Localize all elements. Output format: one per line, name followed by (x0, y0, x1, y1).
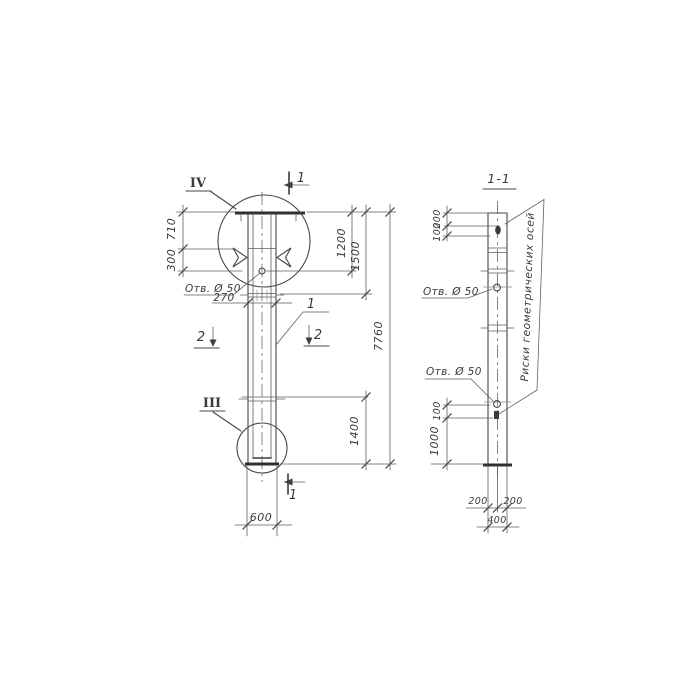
axis-mark-bottom (494, 411, 499, 419)
dim-1400: 1400 (348, 416, 361, 446)
section-arrow-head (210, 340, 217, 348)
right-view-section-1-1: 1-1 Риски геометрических осей Отв. Ø 50 … (422, 171, 544, 533)
dim-1500: 1500 (349, 241, 362, 271)
section-title-label: 1-1 (487, 171, 510, 186)
hole-label-lower: Отв. Ø 50 (426, 366, 482, 378)
dim-400: 400 (487, 515, 506, 526)
dim-1000: 1000 (428, 426, 441, 456)
dimensions-right: 1200 1500 7760 1400 (266, 204, 396, 470)
dimension-600: 600 (235, 466, 292, 536)
hole-callout-upper: Отв. Ø 50 (422, 286, 492, 298)
dim-300: 300 (165, 249, 178, 272)
section-1-top-label: 1 (297, 171, 305, 186)
drawing-canvas: IV III 1 1 2 (0, 0, 700, 700)
section-arrow-head (306, 338, 313, 346)
lower-joint-lines (239, 397, 368, 401)
extension-lines (176, 212, 242, 271)
dim-200-bottom-right: 200 (503, 496, 522, 507)
dim-600: 600 (250, 511, 273, 524)
scanned-technical-drawing: IV III 1 1 2 (0, 0, 700, 700)
right-corbel (277, 248, 291, 267)
section-dims-top: 200 100 (432, 206, 496, 242)
hole-50-lower (494, 401, 501, 408)
left-corbel (233, 248, 247, 267)
section-2-right-label: 2 (314, 328, 322, 343)
detail-mark-III-label: III (203, 396, 221, 411)
section-1-bottom-label: 1 (289, 488, 297, 503)
section-joint-b (481, 269, 514, 273)
position-1-label: 1 (307, 297, 315, 312)
dim-7760: 7760 (372, 321, 385, 351)
dim-710: 710 (165, 218, 178, 241)
detail-mark-IV-label: IV (190, 176, 207, 191)
detail-mark-III: III (200, 396, 241, 431)
dim-100-low: 100 (432, 401, 443, 420)
section-dims-bottom: 200 200 400 (466, 466, 526, 533)
hole-leader-lower (425, 379, 493, 401)
axes-note-callout: Риски геометрических осей (499, 200, 544, 415)
detail-mark-III-leader (200, 411, 241, 431)
detail-mark-IV-leader (186, 191, 236, 209)
axis-mark-top (495, 226, 501, 235)
flange-weld-marks (241, 215, 296, 221)
hole-label-upper: Отв. Ø 50 (423, 286, 479, 298)
detail-mark-IV: IV (186, 176, 236, 209)
dimensions-left: 710 300 (165, 205, 242, 277)
section-title: 1-1 (483, 171, 516, 189)
extension-lines (247, 466, 277, 536)
hole-callout-lower: Отв. Ø 50 (425, 366, 493, 401)
section-mark-2-left: 2 (194, 327, 219, 348)
left-view-column-elevation: IV III 1 1 2 (165, 171, 396, 536)
axes-note-label: Риски геометрических осей (519, 212, 537, 382)
section-mark-1-bottom: 1 (284, 474, 305, 503)
dim-200-bottom-left: 200 (468, 496, 487, 507)
section-mark-1-top: 1 (284, 171, 309, 194)
section-mark-2-right: 2 (304, 325, 329, 346)
section-2-left-label: 2 (197, 330, 205, 345)
dim-270: 270 (213, 292, 234, 304)
dim-1200: 1200 (335, 228, 348, 258)
dim-100-top: 100 (432, 222, 443, 241)
section-dims-lower: 100 1000 (428, 398, 493, 470)
hole-50-upper (494, 284, 501, 291)
